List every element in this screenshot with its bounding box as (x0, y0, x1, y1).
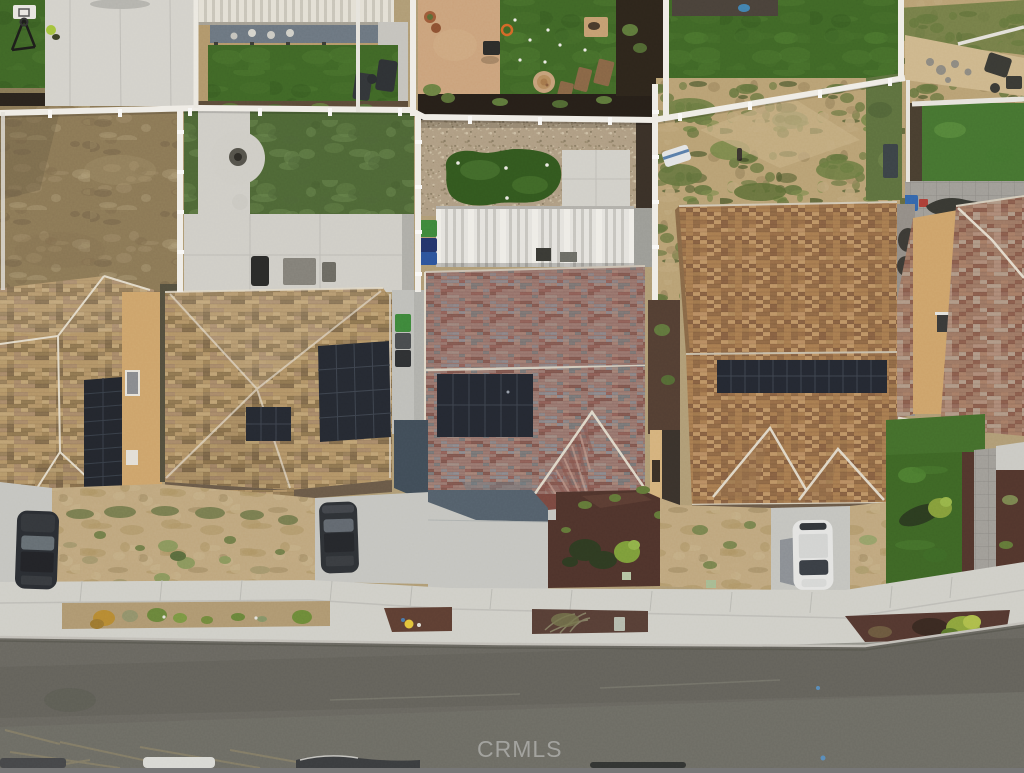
svg-text:CRMLS: CRMLS (477, 736, 563, 762)
